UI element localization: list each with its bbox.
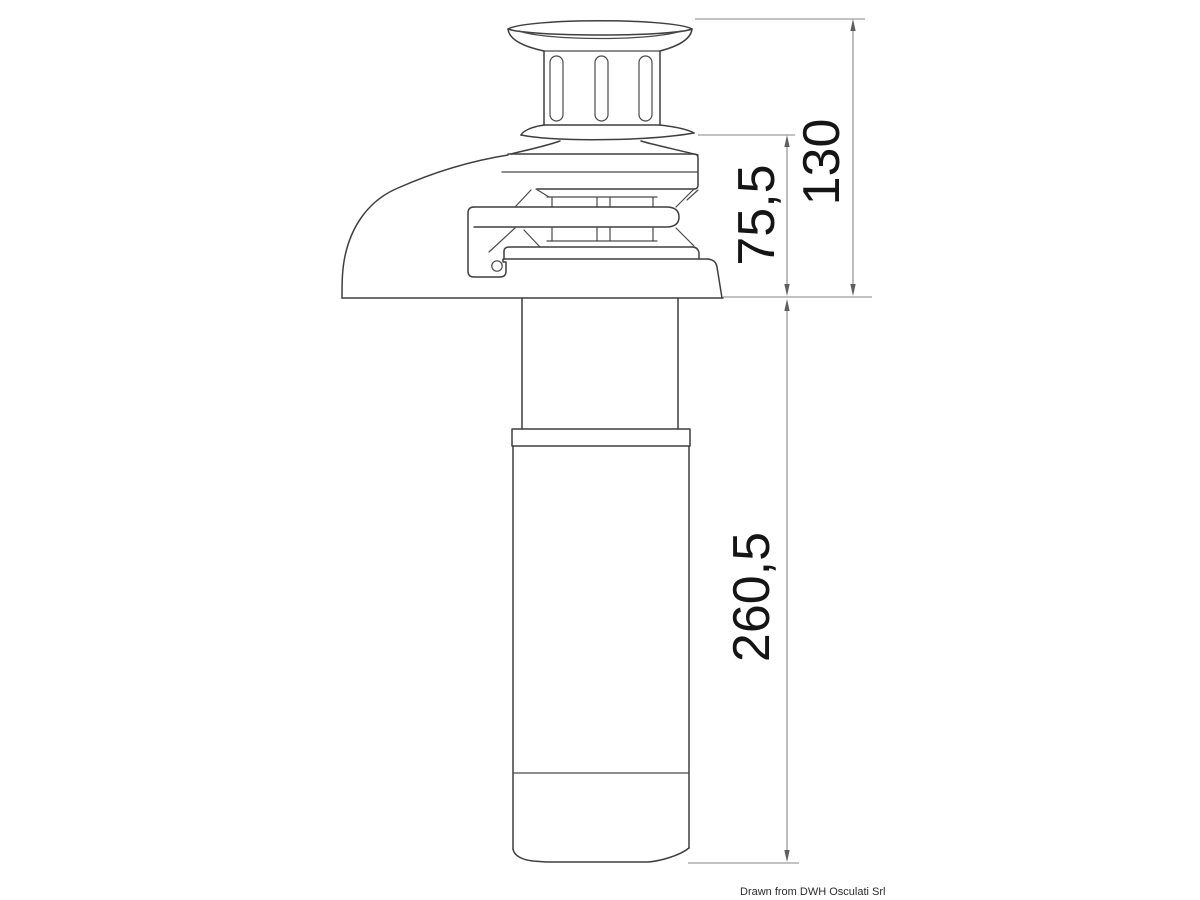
drum-slot [595, 56, 608, 121]
stripper-band [474, 207, 679, 227]
below-deck-motor-tube [512, 298, 690, 862]
credit-text: Drawn from DWH Osculati Srl [740, 886, 885, 898]
groove1-front-slope [515, 190, 531, 207]
groove2-left-slope [524, 230, 540, 247]
arrow-up-icon [784, 299, 789, 311]
bracket-bolt-hole [492, 261, 502, 271]
arrow-up-icon [784, 135, 789, 147]
groove2-right-slope [676, 228, 694, 246]
groove2-front-slope [489, 228, 515, 252]
capstan-top-rim [508, 21, 692, 35]
drum-slot [639, 56, 652, 121]
drum-brim-bottom [521, 133, 694, 140]
capstan-drum [508, 21, 698, 155]
drum-base-cone-right [641, 141, 698, 155]
technical-drawing-canvas: 130 75,5 260,5 Drawn from DWH Osculati S… [0, 0, 1200, 900]
groove1-left-slope [536, 189, 549, 197]
dimension-label-overall-height: 130 [793, 119, 851, 206]
dimension-260-5: 260,5 [688, 299, 799, 863]
drum-brim-right [660, 125, 694, 133]
arrow-down-icon [784, 850, 789, 862]
drawing-page: 130 75,5 260,5 Drawn from DWH Osculati S… [0, 0, 1200, 900]
arrow-down-icon [784, 284, 789, 296]
chain-gypsy-assembly [468, 154, 722, 298]
groove1-right-slope [676, 189, 694, 207]
arrow-up-icon [850, 19, 855, 31]
drum-brim-left [521, 125, 544, 135]
collar-flange [512, 429, 690, 446]
arrow-down-icon [850, 284, 855, 296]
drum-base-cone-left [511, 141, 560, 154]
dimension-label-tube-length: 260,5 [723, 532, 781, 662]
gypsy-lower-flange [504, 247, 699, 259]
housing-right-shoulder [708, 259, 722, 298]
drum-slot [550, 56, 563, 121]
dimension-label-gypsy-height: 75,5 [728, 164, 786, 265]
tube-bottom-chamfer [513, 848, 689, 862]
